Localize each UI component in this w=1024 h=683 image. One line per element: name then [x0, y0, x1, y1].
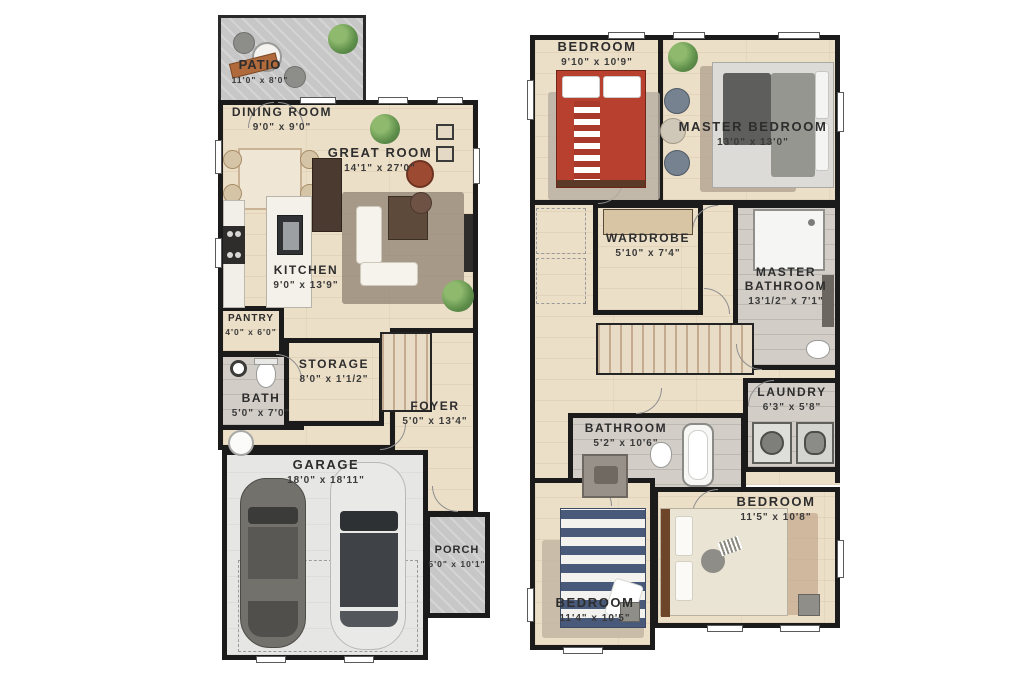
room-dims: 5'2" x 10'6" — [593, 438, 658, 449]
toilet-icon — [256, 362, 276, 388]
plant-icon — [668, 42, 698, 72]
window-icon — [256, 656, 286, 663]
sofa — [356, 206, 382, 264]
room-name: GARAGE — [293, 458, 360, 473]
kitchen-sink — [277, 215, 303, 255]
room-dims: 13'0" x 13'0" — [717, 137, 789, 148]
room-name: STORAGE — [299, 358, 369, 372]
room-dims: 4'0" x 6'0" — [225, 327, 276, 337]
room-label-bath: BATH 5'0" x 7'0" — [222, 392, 300, 419]
toilet-icon — [806, 340, 830, 359]
room-label-bedroom-2: BEDROOM 11'5" x 10'8" — [720, 495, 832, 523]
window-icon — [837, 92, 844, 132]
room-label-dining: DINING ROOM 9'0" x 9'0" — [226, 106, 338, 133]
room-label-storage: STORAGE 8'0" x 1'1/2" — [288, 358, 380, 385]
closet-dashed — [536, 258, 586, 304]
patio-chair — [233, 32, 255, 54]
room-name: BATHROOM — [585, 422, 668, 436]
bath-sink-icon — [230, 360, 247, 377]
room-label-kitchen: KITCHEN 9'0" x 13'9" — [264, 264, 348, 291]
room-label-bathroom: BATHROOM 5'2" x 10'6" — [574, 422, 678, 449]
wall-segment — [530, 200, 535, 483]
window-icon — [378, 97, 408, 104]
room-dims: 8'0" x 1'1/2" — [300, 374, 369, 385]
room-label-master-bedroom: MASTER BEDROOM 13'0" x 13'0" — [674, 120, 832, 148]
room-label-foyer: FOYER 5'0" x 13'4" — [398, 400, 472, 427]
bathtub-icon — [682, 423, 714, 487]
room-name: BEDROOM — [736, 495, 815, 510]
room-name: FOYER — [410, 400, 459, 414]
dining-chair — [223, 150, 242, 169]
floorplan-canvas: PATIO 11'0" x 8'0" DINING ROOM 9'0" x 9'… — [0, 0, 1024, 683]
shower-icon — [753, 209, 825, 271]
armchair — [436, 146, 454, 162]
window-icon — [608, 32, 645, 39]
room-label-bedroom-3: BEDROOM 11'4" x 10'5" — [544, 596, 646, 624]
bed-graphic — [660, 508, 788, 616]
armchair — [664, 150, 690, 176]
room-label-great-room: GREAT ROOM 14'1" x 27'0" — [328, 146, 432, 174]
armchair — [436, 124, 454, 140]
room-name: LAUNDRY — [757, 386, 826, 400]
closet-dashed — [536, 208, 586, 254]
room-label-bedroom-1: BEDROOM 9'10" x 10'9" — [544, 40, 650, 68]
room-name: BEDROOM — [555, 596, 634, 611]
room-name: WARDROBE — [606, 232, 690, 246]
plant-icon — [442, 280, 474, 312]
room-label-patio: PATIO 11'0" x 8'0" — [222, 58, 298, 85]
window-icon — [344, 656, 374, 663]
window-icon — [707, 625, 743, 632]
side-table — [410, 192, 432, 214]
armchair — [664, 88, 690, 114]
room-name: BEDROOM — [557, 40, 636, 55]
tv-unit — [464, 214, 473, 272]
room-dims: 11'5" x 10'8" — [740, 512, 811, 523]
room-dims: 11'0" x 8'0" — [232, 75, 289, 85]
room-dims: 5'0" x 10'1" — [428, 559, 485, 569]
car-graphic — [330, 462, 406, 650]
window-icon — [215, 140, 222, 174]
room-dims: 5'0" x 13'4" — [402, 416, 467, 427]
sofa — [360, 262, 418, 286]
pouf — [798, 594, 820, 616]
room-name: GREAT ROOM — [328, 146, 433, 161]
window-icon — [837, 540, 844, 578]
staircase — [596, 323, 754, 375]
water-heater-icon — [228, 430, 254, 456]
kitchen-island — [266, 196, 312, 308]
room-dims: 5'10" x 7'4" — [615, 248, 680, 259]
room-label-wardrobe: WARDROBE 5'10" x 7'4" — [598, 232, 698, 259]
shower-icon — [582, 454, 628, 498]
window-icon — [527, 588, 534, 622]
room-dims: 13'1/2" x 7'1" — [748, 296, 824, 307]
room-dims: 14'1" x 27'0" — [344, 163, 416, 174]
room-label-garage: GARAGE 18'0" x 18'11" — [270, 458, 382, 486]
dryer-icon — [796, 422, 834, 464]
room-name: PANTRY — [228, 313, 274, 325]
room-name: PORCH — [435, 544, 480, 557]
room-name: MASTER BATHROOM — [738, 266, 834, 294]
bed-graphic — [556, 70, 646, 188]
room-dims: 9'0" x 13'9" — [273, 280, 338, 291]
window-icon — [473, 148, 480, 184]
room-dims: 9'10" x 10'9" — [561, 57, 633, 68]
room-label-laundry: LAUNDRY 6'3" x 5'8" — [750, 386, 834, 413]
room-dims: 11'4" x 10'5" — [559, 613, 630, 624]
room-dims: 5'0" x 7'0" — [232, 408, 291, 419]
room-label-pantry: PANTRY 4'0" x 6'0" — [221, 313, 281, 337]
room-name: PATIO — [239, 58, 282, 73]
stove-icon — [223, 226, 245, 264]
window-icon — [527, 80, 534, 120]
window-icon — [673, 32, 705, 39]
room-name: BATH — [242, 392, 281, 406]
room-dims: 18'0" x 18'11" — [287, 475, 365, 486]
toilet-tank — [254, 358, 278, 365]
window-icon — [563, 647, 603, 654]
washer-icon — [752, 422, 792, 464]
room-name: KITCHEN — [274, 264, 339, 278]
room-dims: 6'3" x 5'8" — [763, 402, 822, 413]
window-icon — [300, 97, 336, 104]
window-icon — [437, 97, 463, 104]
room-name: MASTER BEDROOM — [679, 120, 828, 135]
room-label-master-bathroom: MASTER BATHROOM 13'1/2" x 7'1" — [738, 266, 834, 307]
window-icon — [215, 238, 222, 268]
room-dims: 9'0" x 9'0" — [253, 122, 312, 133]
window-icon — [780, 625, 820, 632]
wall-segment — [835, 365, 840, 483]
window-icon — [778, 32, 820, 39]
room-name: DINING ROOM — [232, 106, 332, 120]
room-label-porch: PORCH 5'0" x 10'1" — [427, 544, 487, 569]
plant-icon — [370, 114, 400, 144]
plant-icon — [328, 24, 358, 54]
car-graphic — [240, 478, 306, 648]
